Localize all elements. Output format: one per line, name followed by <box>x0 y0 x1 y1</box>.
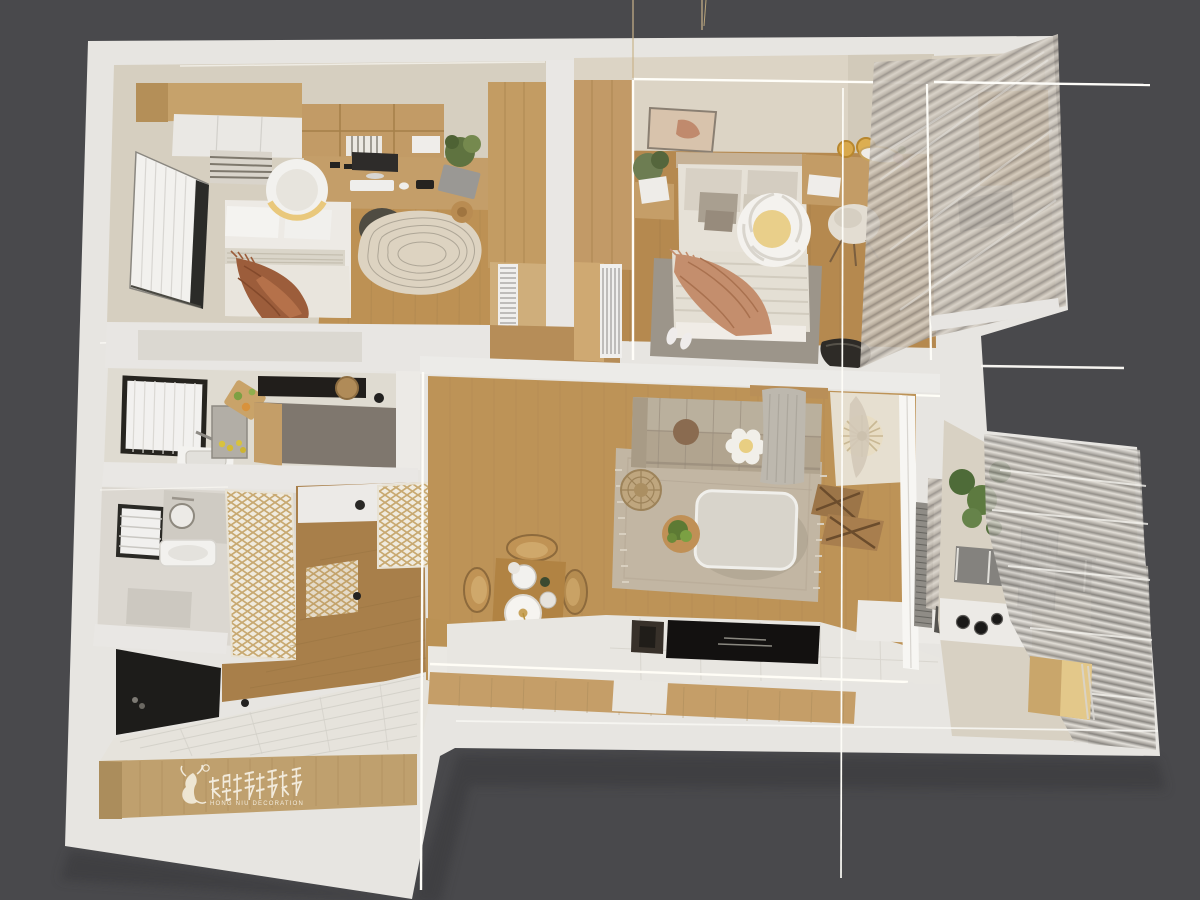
svg-text:HONG NIU DECORATION: HONG NIU DECORATION <box>210 801 304 807</box>
